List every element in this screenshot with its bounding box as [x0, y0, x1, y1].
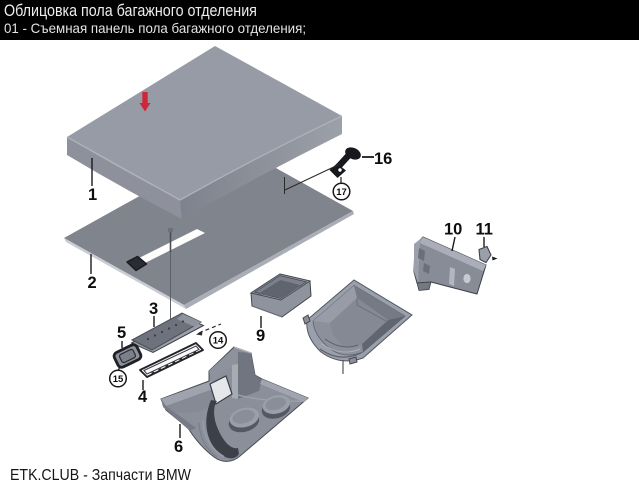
svg-text:11: 11	[476, 221, 493, 239]
svg-text:10: 10	[444, 221, 462, 239]
svg-text:9: 9	[256, 327, 265, 345]
svg-text:17: 17	[336, 187, 347, 198]
svg-text:6: 6	[174, 438, 183, 456]
svg-text:2: 2	[88, 274, 97, 292]
svg-text:16: 16	[374, 150, 392, 168]
svg-text:15: 15	[113, 374, 124, 385]
svg-text:14: 14	[213, 336, 224, 347]
svg-text:1: 1	[88, 186, 97, 204]
svg-text:3: 3	[149, 300, 158, 318]
svg-text:4: 4	[138, 388, 148, 406]
svg-text:5: 5	[117, 324, 126, 342]
